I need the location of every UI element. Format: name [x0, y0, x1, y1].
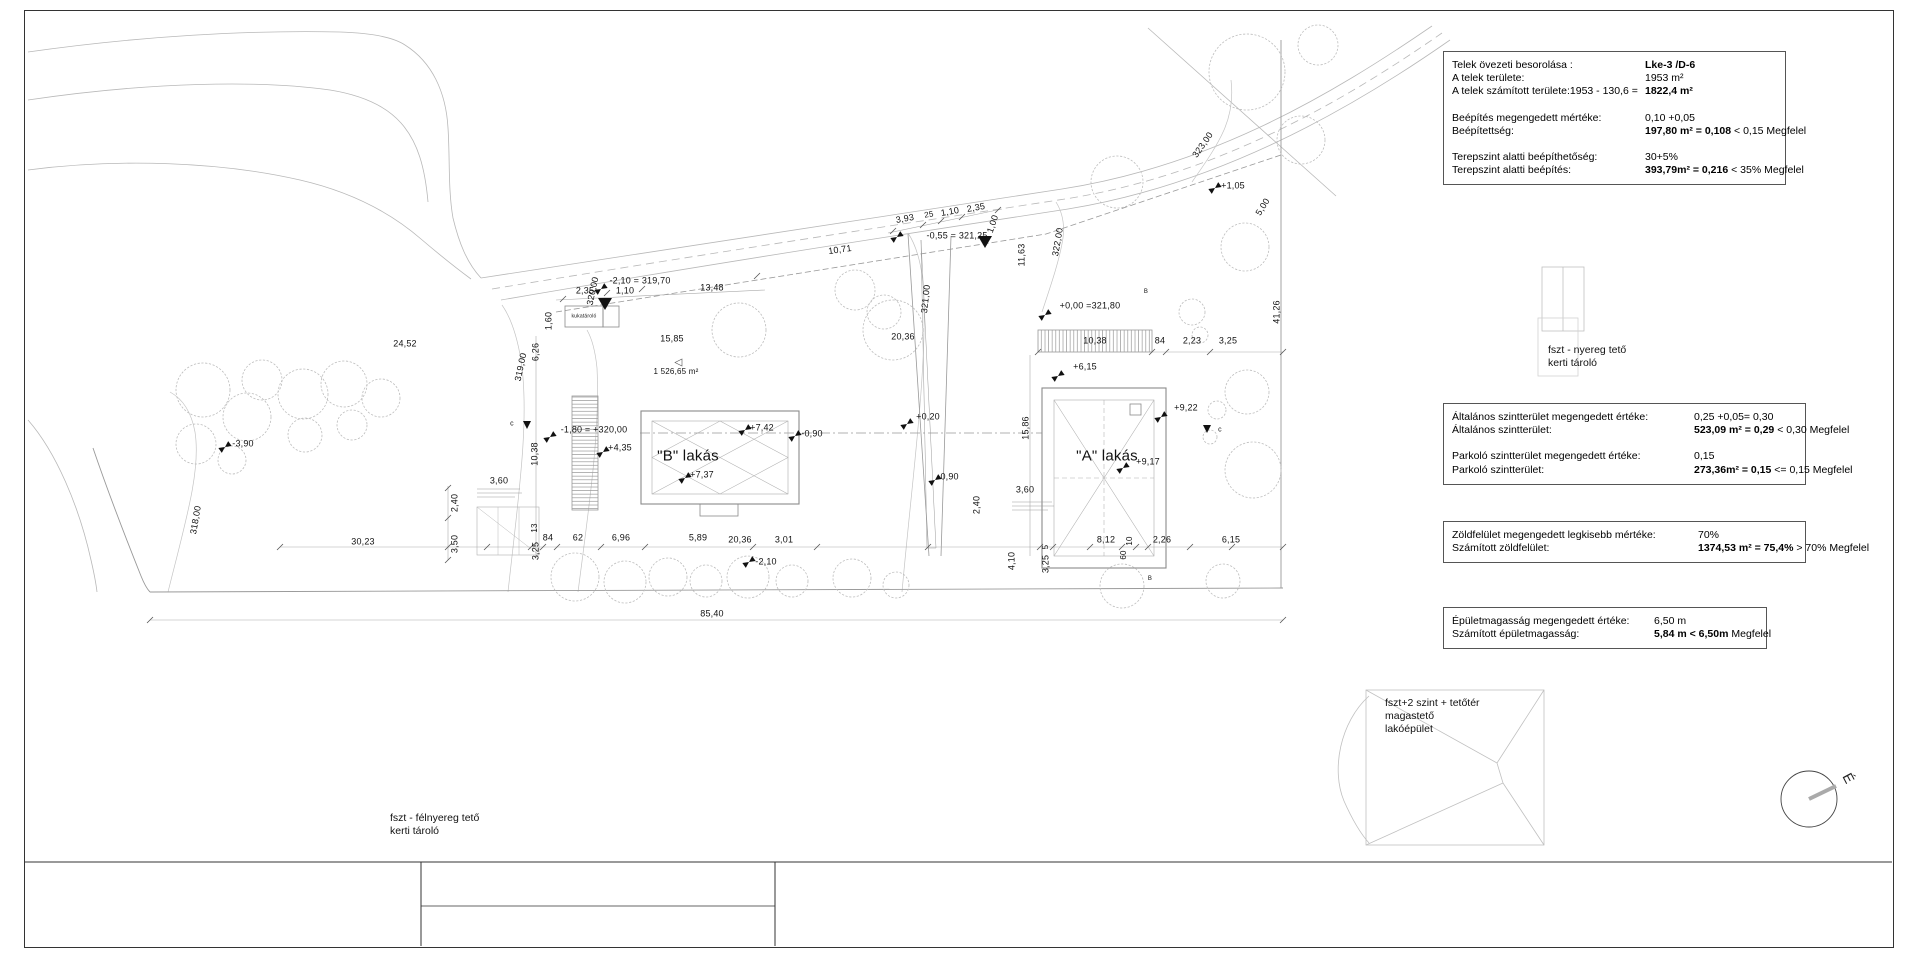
tree-icon: [242, 360, 282, 400]
tree-icon: [867, 295, 901, 329]
info-row: Épületmagasság megengedett értéke:6,50 m: [1452, 615, 1758, 628]
green-area-info-box: Zöldfelület megengedett legkisebb mérték…: [1443, 521, 1806, 563]
tree-icon: [604, 561, 646, 603]
north-needle-icon: [1809, 786, 1836, 799]
info-row: A telek számított területe:1953 - 130,6 …: [1452, 85, 1777, 98]
benchmark-flag-icon: [788, 430, 801, 442]
benchmark-markers: [218, 182, 1221, 568]
tree-icon: [1209, 34, 1285, 110]
info-row: Telek övezeti besorolása :Lke-3 /D-6: [1452, 59, 1777, 72]
benchmark-flag-icon: [218, 441, 231, 453]
tree-icon: [337, 410, 367, 440]
waste-shed: [565, 306, 603, 327]
info-row: Beépítés megengedett mértéke:0,10 +0,05: [1452, 112, 1777, 125]
benchmark-flag-icon: [543, 431, 556, 443]
tree-icon: [223, 393, 271, 441]
info-row: Terepszint alatti beépíthetőség:30+5%: [1452, 151, 1777, 164]
tree-icon: [1100, 564, 1144, 608]
tree-icon: [321, 361, 367, 407]
building-b: [641, 411, 799, 516]
tree-icon: [1221, 223, 1269, 271]
dimension-ticks: [147, 207, 1286, 623]
tree-icon: [1225, 442, 1281, 498]
dimension-tick: [639, 286, 645, 292]
datum-triangle-icon: [978, 236, 992, 248]
tree-icon: [1277, 116, 1325, 164]
stairs-b: [572, 396, 598, 510]
benchmark-flag-icon: [1208, 182, 1221, 194]
info-row: Számított zöldfelület:1374,53 m² = 75,4%…: [1452, 542, 1797, 555]
benchmark-flag-icon: [742, 556, 755, 568]
tree-icon: [833, 559, 871, 597]
floor-area-info-box: Általános szintterület megengedett érték…: [1443, 403, 1806, 485]
dimension-tick: [604, 290, 610, 296]
tree-icon: [1179, 299, 1205, 325]
north-arrow: [1781, 771, 1837, 827]
info-row: A telek területe:1953 m²: [1452, 72, 1777, 85]
main-building-note: fszt+2 szint + tetőtér magastető lakóépü…: [1385, 697, 1480, 736]
section-marker-icon: [1203, 425, 1211, 433]
tree-icon: [690, 565, 722, 597]
tree-icon: [712, 303, 766, 357]
benchmark-flag-icon: [900, 418, 913, 430]
tree-icon: [1206, 564, 1240, 598]
tree-icon: [1225, 370, 1269, 414]
benchmark-flag-icon: [1038, 309, 1051, 321]
benchmark-flag-icon: [594, 283, 607, 295]
dimension-lines: [150, 209, 1283, 620]
dimension-tick: [560, 296, 566, 302]
zoning-info-box: Telek övezeti besorolása :Lke-3 /D-6A te…: [1443, 51, 1786, 185]
tree-icon: [776, 565, 808, 597]
small-structures: [477, 306, 1054, 555]
benchmark-flag-icon: [1116, 462, 1129, 474]
tree-icon: [551, 553, 599, 601]
stairs-group: [572, 330, 1152, 510]
info-row: Általános szintterület megengedett érték…: [1452, 411, 1797, 424]
area-arrow-icon: [675, 359, 682, 366]
benchmark-flag-icon: [1051, 370, 1064, 382]
building-height-info-box: Épületmagasság megengedett értéke:6,50 m…: [1443, 607, 1767, 649]
info-row: Beépítettség:197,80 m² = 0,108 < 0,15 Me…: [1452, 125, 1777, 138]
info-row: Parkoló szintterület:273,36m² = 0,15 <= …: [1452, 464, 1797, 477]
benchmark-flag-icon: [890, 231, 903, 243]
trees-layer: [176, 25, 1338, 608]
site-plan-sheet: -2,10 = 319,702,351,1013,4815,8524,52-3,…: [0, 0, 1920, 960]
tree-icon: [1208, 401, 1226, 419]
roads-layer: [28, 26, 1450, 592]
info-row: Zöldfelület megengedett legkisebb mérték…: [1452, 529, 1797, 542]
tree-icon: [1192, 327, 1208, 343]
datum-triangle-icon: [598, 298, 612, 310]
tree-icon: [1203, 430, 1217, 444]
info-row: Terepszint alatti beépítés:393,79m² = 0,…: [1452, 164, 1777, 177]
tree-icon: [883, 572, 909, 598]
benchmark-flag-icon: [928, 474, 941, 486]
dimension-tick: [890, 228, 896, 234]
info-row: Számított épületmagasság:5,84 m < 6,50m …: [1452, 628, 1758, 641]
title-block: [24, 862, 1892, 946]
info-row: Parkoló szintterület megengedett értéke:…: [1452, 450, 1797, 463]
tree-icon: [288, 418, 322, 452]
dimension-tick: [938, 218, 944, 224]
dimension-tick: [754, 273, 760, 279]
plot-boundary: [93, 40, 1283, 592]
shed-right-note: fszt - nyereg tető kerti tároló: [1548, 344, 1626, 370]
tree-icon: [362, 379, 400, 417]
tree-icon: [176, 363, 230, 417]
tree-icon: [278, 369, 328, 419]
info-row: Általános szintterület:523,09 m² = 0,29 …: [1452, 424, 1797, 437]
tree-icon: [1298, 25, 1338, 65]
building-a: [1042, 388, 1166, 568]
shed-left-note: fszt - félnyereg tető kerti tároló: [390, 812, 479, 838]
stairs-a: [1038, 330, 1152, 352]
